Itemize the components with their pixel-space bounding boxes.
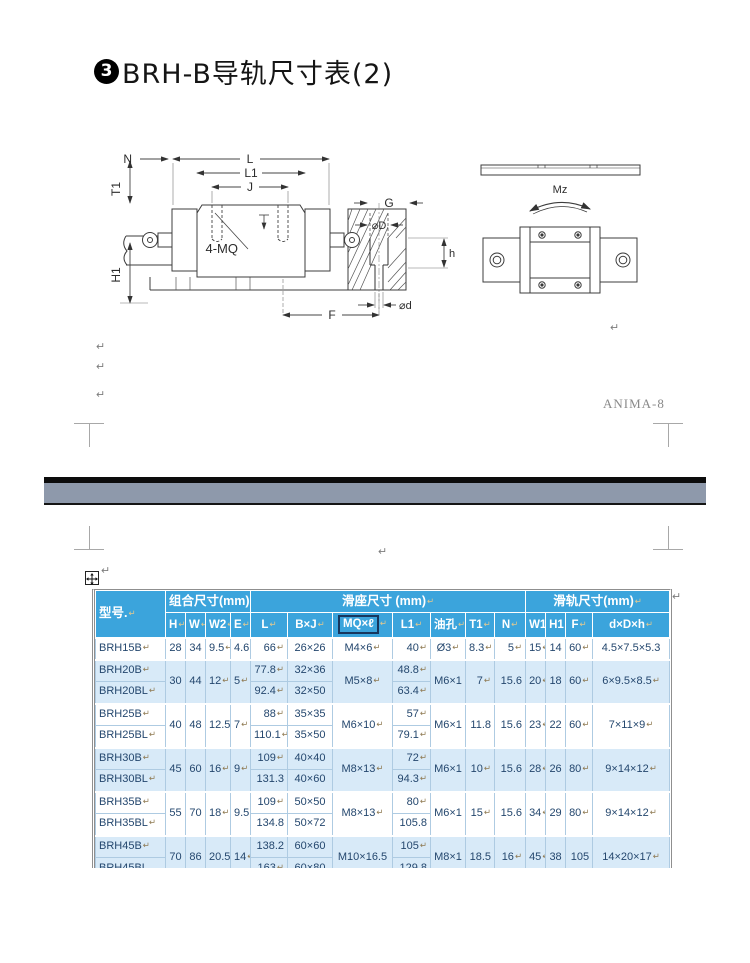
model-cell[interactable]: BRH15B↵ xyxy=(96,638,166,660)
dim-label-h: h xyxy=(449,248,455,260)
table-cell[interactable]: 16↵ xyxy=(495,836,526,869)
table-cell[interactable]: 105 xyxy=(566,836,593,869)
cell-end-mark: ↵ xyxy=(653,675,660,685)
table-cell[interactable]: 28 xyxy=(166,638,186,660)
table-row: BRH45B↵708620.514↵138.260×60M10×16.5105↵… xyxy=(96,836,670,858)
cell-end-mark: ↵ xyxy=(282,729,288,739)
table-row: BRH30B↵456016↵9↵109↵40×40M8×13↵72↵M6×110… xyxy=(96,748,670,770)
column-header-model[interactable]: 型号.↵ xyxy=(96,591,166,638)
cell-end-mark: ↵ xyxy=(653,851,660,861)
table-cell[interactable]: 79.1↵ xyxy=(393,726,431,748)
dim-label-L: L xyxy=(247,152,254,166)
table-cell[interactable]: 48 xyxy=(186,704,206,748)
cell-end-mark: ↵ xyxy=(515,642,522,652)
cell-end-mark: ↵ xyxy=(143,642,150,652)
model-cell[interactable]: BRH35BL↵ xyxy=(96,814,166,836)
table-cell[interactable]: 34↵ xyxy=(526,792,546,836)
dim-label-4MQ: 4-MQ xyxy=(206,241,239,256)
cell-end-mark: ↵ xyxy=(485,642,492,652)
cell-end-mark: ↵ xyxy=(376,807,383,817)
table-cell[interactable]: 45↵ xyxy=(526,836,546,869)
cell-end-mark: ↵ xyxy=(128,608,135,618)
cell-end-mark: ↵ xyxy=(373,642,380,652)
cell-end-mark: ↵ xyxy=(376,763,383,773)
table-cell[interactable]: 4.5×7.5×5.3 xyxy=(593,638,670,660)
cell-end-mark: ↵ xyxy=(241,675,248,685)
cell-end-mark: ↵ xyxy=(318,619,325,629)
table-cell[interactable]: 80↵ xyxy=(566,792,593,836)
cell-end-mark: ↵ xyxy=(149,817,156,827)
table-cell[interactable]: M8×1 xyxy=(431,836,466,869)
table-cell[interactable]: 50×72 xyxy=(288,814,333,836)
table-cell[interactable]: 28↵ xyxy=(526,748,546,792)
table-cell[interactable]: 15.6 xyxy=(495,704,526,748)
table-cell[interactable]: 60↵ xyxy=(566,660,593,704)
dim-label-F: F xyxy=(328,308,335,322)
table-cell[interactable]: 6×9.5×8.5↵ xyxy=(593,660,670,704)
cell-end-mark: ↵ xyxy=(646,719,653,729)
dim-label-d: ⌀d xyxy=(399,300,412,312)
dim-label-T1: T1 xyxy=(109,182,123,196)
table-cell[interactable]: 57↵ xyxy=(393,704,431,726)
spec-table-frame: 型号.↵组合尺寸(mm)↵滑座尺寸 (mm)↵滑轨尺寸(mm)↵H↵W↵W2↵E… xyxy=(92,589,672,868)
cell-end-mark: ↵ xyxy=(269,619,276,629)
page-break-line xyxy=(44,503,706,505)
margin-corner-mark xyxy=(89,526,90,550)
table-cell[interactable]: 86 xyxy=(186,836,206,869)
table-cell[interactable]: 72↵ xyxy=(393,748,431,770)
table-cell[interactable]: 134.8 xyxy=(251,814,288,836)
cell-end-mark: ↵ xyxy=(420,685,427,695)
table-cell[interactable]: 32×36 xyxy=(288,660,333,682)
table-cell[interactable]: 15.6 xyxy=(495,792,526,836)
table-cell[interactable]: 7↵ xyxy=(231,704,251,748)
cell-end-mark: ↵ xyxy=(515,851,522,861)
cell-end-mark: ↵ xyxy=(420,796,427,806)
table-cell[interactable]: 11.8 xyxy=(466,704,495,748)
column-header[interactable]: N↵ xyxy=(495,613,526,638)
table-cell[interactable]: 138.2 xyxy=(251,836,288,858)
table-cell[interactable]: 40 xyxy=(166,704,186,748)
cell-end-mark: ↵ xyxy=(143,664,150,674)
column-header[interactable]: MQ×ℓ↵ xyxy=(333,613,393,638)
column-group-header[interactable]: 滑座尺寸 (mm)↵ xyxy=(251,591,526,613)
paragraph-mark: ↵ xyxy=(96,362,105,373)
cell-end-mark: ↵ xyxy=(241,719,248,729)
column-header[interactable]: 油孔↵ xyxy=(431,613,466,638)
table-cell[interactable]: 7×11×9↵ xyxy=(593,704,670,748)
table-cell[interactable]: 80↵ xyxy=(566,748,593,792)
cell-end-mark: ↵ xyxy=(373,675,380,685)
table-cell[interactable]: 26 xyxy=(546,748,566,792)
highlighted-field-box: MQ×ℓ xyxy=(338,615,379,634)
table-cell[interactable]: 80↵ xyxy=(393,792,431,814)
table-cell[interactable]: 110.1↵ xyxy=(251,726,288,748)
table-cell[interactable]: M8×13↵ xyxy=(333,792,393,836)
table-cell[interactable]: M5×8↵ xyxy=(333,660,393,704)
table-cell[interactable]: 163↵ xyxy=(251,858,288,869)
cell-end-mark: ↵ xyxy=(380,618,387,628)
cell-end-mark: ↵ xyxy=(635,596,642,606)
cell-end-mark: ↵ xyxy=(458,619,465,629)
table-cell[interactable]: 9.5↵ xyxy=(206,638,231,660)
cell-end-mark: ↵ xyxy=(222,675,229,685)
dim-label-D: ⌀D xyxy=(372,220,387,232)
column-header[interactable]: L↵ xyxy=(251,613,288,638)
table-cell[interactable]: M10×16.5 xyxy=(333,836,393,869)
table-row: BRH35B↵557018↵9.5109↵50×50M8×13↵80↵M6×11… xyxy=(96,792,670,814)
cell-end-mark: ↵ xyxy=(143,708,150,718)
table-cell[interactable]: 15.6 xyxy=(495,748,526,792)
cell-end-mark: ↵ xyxy=(484,675,491,685)
table-cell[interactable]: 35×50 xyxy=(288,726,333,748)
table-cell[interactable]: M6×10↵ xyxy=(333,704,393,748)
cell-end-mark: ↵ xyxy=(149,729,156,739)
cell-end-mark: ↵ xyxy=(452,642,459,652)
page-break-separator xyxy=(44,483,706,503)
table-cell[interactable]: 40×60 xyxy=(288,770,333,792)
dim-label-J: J xyxy=(247,180,253,194)
table-cell[interactable]: M6×1 xyxy=(431,792,466,836)
table-cell[interactable]: 14↵ xyxy=(231,836,251,869)
cell-end-mark: ↵ xyxy=(178,619,185,629)
cell-end-mark: ↵ xyxy=(225,642,230,652)
table-cell[interactable]: 32×50 xyxy=(288,682,333,704)
column-header[interactable]: F↵ xyxy=(566,613,593,638)
table-row: BRH25B↵404812.57↵88↵35×35M6×10↵57↵M6×111… xyxy=(96,704,670,726)
cell-end-mark: ↵ xyxy=(580,619,587,629)
table-cell[interactable]: 22 xyxy=(546,704,566,748)
cell-end-mark: ↵ xyxy=(143,752,150,762)
table-cell[interactable]: 105.8 xyxy=(393,814,431,836)
table-cell[interactable]: Ø3↵ xyxy=(431,638,466,660)
column-header[interactable]: W1 xyxy=(526,613,546,638)
table-cell[interactable]: M8×13↵ xyxy=(333,748,393,792)
table-cell[interactable]: 16↵ xyxy=(206,748,231,792)
cell-end-mark: ↵ xyxy=(646,619,653,629)
table-row: BRH15B↵28349.5↵4.666↵26×26M4×6↵40↵Ø3↵8.3… xyxy=(96,638,670,660)
watermark-text: ANIMA-8 xyxy=(603,396,665,412)
table-cell[interactable]: 60×60 xyxy=(288,836,333,858)
cell-end-mark: ↵ xyxy=(277,685,284,695)
move-arrows-icon xyxy=(86,573,98,585)
margin-corner-mark xyxy=(89,423,90,447)
table-cell[interactable]: 5↵ xyxy=(231,660,251,704)
table-cell[interactable]: 109↵ xyxy=(251,748,288,770)
table-cell[interactable]: 15.6 xyxy=(495,660,526,704)
column-header[interactable]: H1 xyxy=(546,613,566,638)
table-cell[interactable]: 44 xyxy=(186,660,206,704)
dim-label-N: N xyxy=(123,152,132,166)
cell-end-mark: ↵ xyxy=(222,763,229,773)
column-group-header[interactable]: 组合尺寸(mm)↵ xyxy=(166,591,251,613)
table-row: BRH20B↵304412↵5↵77.8↵32×36M5×8↵48.8↵M6×1… xyxy=(96,660,670,682)
model-cell[interactable]: BRH35B↵ xyxy=(96,792,166,814)
table-cell[interactable]: M4×6↵ xyxy=(333,638,393,660)
table-cell[interactable]: 18 xyxy=(546,660,566,704)
table-cell[interactable]: 50×50 xyxy=(288,792,333,814)
table-cell[interactable]: 38 xyxy=(546,836,566,869)
cell-end-mark: ↵ xyxy=(484,763,491,773)
table-cell[interactable]: 20.5 xyxy=(206,836,231,869)
table-cell[interactable]: 55 xyxy=(166,792,186,836)
table-cell[interactable]: 9↵ xyxy=(231,748,251,792)
dim-label-H1: H1 xyxy=(109,267,123,283)
left-section-view xyxy=(124,203,406,311)
model-cell[interactable]: BRH25BL↵ xyxy=(96,726,166,748)
table-cell[interactable]: 60↵ xyxy=(566,704,593,748)
margin-corner-mark xyxy=(668,423,669,447)
cell-end-mark: ↵ xyxy=(241,763,248,773)
table-cell[interactable]: 92.4↵ xyxy=(251,682,288,704)
cell-end-mark: ↵ xyxy=(149,773,156,783)
column-header[interactable]: B×J↵ xyxy=(288,613,333,638)
cell-end-mark: ↵ xyxy=(277,796,284,806)
rail-dimension-drawing: N L L1 J T1 H1 G ⌀D h ⌀d F 4-MQ Mz xyxy=(90,143,670,343)
table-cell[interactable]: 60×80 xyxy=(288,858,333,869)
table-cell[interactable]: M6×1 xyxy=(431,748,466,792)
table-cell[interactable]: 35×35 xyxy=(288,704,333,726)
table-cell[interactable]: M6×1 xyxy=(431,704,466,748)
table-cell[interactable]: 45 xyxy=(166,748,186,792)
model-cell[interactable]: BRH20BL↵ xyxy=(96,682,166,704)
table-cell[interactable]: 48.8↵ xyxy=(393,660,431,682)
table-cell[interactable]: 40×40 xyxy=(288,748,333,770)
table-cell[interactable]: 109↵ xyxy=(251,792,288,814)
cell-end-mark: ↵ xyxy=(582,675,589,685)
cell-end-mark: ↵ xyxy=(143,796,150,806)
table-cell[interactable]: 29 xyxy=(546,792,566,836)
column-header[interactable]: E↵ xyxy=(231,613,251,638)
column-header[interactable]: W↵ xyxy=(186,613,206,638)
table-cell[interactable]: 18↵ xyxy=(206,792,231,836)
table-cell[interactable]: 15↵ xyxy=(466,792,495,836)
table-cell[interactable]: 9×14×12↵ xyxy=(593,792,670,836)
table-cell[interactable]: 88↵ xyxy=(251,704,288,726)
paragraph-mark: ↵ xyxy=(101,566,110,577)
spec-table-container: 型号.↵组合尺寸(mm)↵滑座尺寸 (mm)↵滑轨尺寸(mm)↵H↵W↵W2↵E… xyxy=(92,589,674,868)
table-cell[interactable]: 70 xyxy=(166,836,186,869)
document-page: { "title": {"bullet": "3", "text": "BRH-… xyxy=(0,0,750,963)
dim-label-Mz: Mz xyxy=(553,184,568,196)
paragraph-mark: ↵ xyxy=(610,323,619,334)
cell-end-mark: ↵ xyxy=(243,619,250,629)
page-title: 3 BRH-B导轨尺寸表(2) xyxy=(94,52,393,91)
table-cell[interactable]: 14×20×17↵ xyxy=(593,836,670,869)
table-cell[interactable]: 94.3↵ xyxy=(393,770,431,792)
table-cell[interactable]: 9.5 xyxy=(231,792,251,836)
table-cell[interactable]: 131.3 xyxy=(251,770,288,792)
table-cell[interactable]: 18.5 xyxy=(466,836,495,869)
table-cell[interactable]: M6×1 xyxy=(431,660,466,704)
cell-end-mark: ↵ xyxy=(650,763,657,773)
cell-end-mark: ↵ xyxy=(420,752,427,762)
table-cell[interactable]: 7↵ xyxy=(466,660,495,704)
table-cell[interactable]: 10↵ xyxy=(466,748,495,792)
table-move-handle[interactable] xyxy=(85,571,99,585)
page-title-text: BRH-B导轨尺寸表(2) xyxy=(122,52,393,91)
table-cell[interactable]: 15↵ xyxy=(526,638,546,660)
cell-end-mark: ↵ xyxy=(277,708,284,718)
cell-end-mark: ↵ xyxy=(427,596,434,606)
cell-end-mark: ↵ xyxy=(277,664,284,674)
column-header[interactable]: L1↵ xyxy=(393,613,431,638)
cell-end-mark: ↵ xyxy=(420,773,427,783)
column-header[interactable]: H↵ xyxy=(166,613,186,638)
table-cell[interactable]: 77.8↵ xyxy=(251,660,288,682)
model-cell[interactable]: BRH30BL↵ xyxy=(96,770,166,792)
table-cell[interactable]: 5↵ xyxy=(495,638,526,660)
paragraph-mark: ↵ xyxy=(96,390,105,401)
table-cell[interactable]: 26×26 xyxy=(288,638,333,660)
cell-end-mark: ↵ xyxy=(582,642,589,652)
cell-end-mark: ↵ xyxy=(222,807,229,817)
rail-spec-table[interactable]: 型号.↵组合尺寸(mm)↵滑座尺寸 (mm)↵滑轨尺寸(mm)↵H↵W↵W2↵E… xyxy=(95,590,670,868)
table-cell[interactable]: 63.4↵ xyxy=(393,682,431,704)
cell-end-mark: ↵ xyxy=(201,619,206,629)
table-cell[interactable]: 20↵ xyxy=(526,660,546,704)
cell-end-mark: ↵ xyxy=(420,840,427,850)
table-cell[interactable]: 23↵ xyxy=(526,704,546,748)
cell-end-mark: ↵ xyxy=(149,685,156,695)
dim-label-L1: L1 xyxy=(244,166,258,180)
cell-end-mark: ↵ xyxy=(420,729,427,739)
table-cell[interactable]: 9×14×12↵ xyxy=(593,748,670,792)
cell-end-mark: ↵ xyxy=(582,763,589,773)
cell-end-mark: ↵ xyxy=(420,664,427,674)
title-number-badge: 3 xyxy=(94,59,119,84)
cell-end-mark: ↵ xyxy=(277,752,284,762)
table-cell[interactable]: 40↵ xyxy=(393,638,431,660)
cell-end-mark: ↵ xyxy=(420,708,427,718)
cell-end-mark: ↵ xyxy=(582,719,589,729)
cell-end-mark: ↵ xyxy=(415,619,422,629)
model-cell[interactable]: BRH45B↵ xyxy=(96,836,166,858)
model-cell[interactable]: BRH20B↵ xyxy=(96,660,166,682)
cell-end-mark: ↵ xyxy=(277,642,284,652)
column-group-header[interactable]: 滑轨尺寸(mm)↵ xyxy=(526,591,670,613)
model-cell[interactable]: BRH30B↵ xyxy=(96,748,166,770)
cell-end-mark: ↵ xyxy=(143,840,150,850)
model-cell[interactable]: BRH45BL xyxy=(96,858,166,869)
column-header[interactable]: W2↵ xyxy=(206,613,231,638)
table-cell[interactable]: 60↵ xyxy=(566,638,593,660)
table-cell[interactable]: 60 xyxy=(186,748,206,792)
table-cell[interactable]: 4.6 xyxy=(231,638,251,660)
table-cell[interactable]: 66↵ xyxy=(251,638,288,660)
table-cell[interactable]: 70 xyxy=(186,792,206,836)
cell-end-mark: ↵ xyxy=(511,619,518,629)
cell-end-mark: ↵ xyxy=(484,619,491,629)
table-cell[interactable]: 34 xyxy=(186,638,206,660)
column-header[interactable]: d×D×h↵ xyxy=(593,613,670,638)
table-cell[interactable]: 14 xyxy=(546,638,566,660)
margin-corner-mark xyxy=(668,526,669,550)
paragraph-mark: ↵ xyxy=(96,342,105,353)
table-cell[interactable]: 8.3↵ xyxy=(466,638,495,660)
table-cell[interactable]: 129.8 xyxy=(393,858,431,869)
model-cell[interactable]: BRH25B↵ xyxy=(96,704,166,726)
table-cell[interactable]: 105↵ xyxy=(393,836,431,858)
dim-label-G: G xyxy=(384,196,393,210)
cell-end-mark: ↵ xyxy=(277,862,284,868)
cell-end-mark: ↵ xyxy=(484,807,491,817)
cell-end-mark: ↵ xyxy=(582,807,589,817)
cell-end-mark: ↵ xyxy=(376,719,383,729)
table-cell[interactable]: 12.5 xyxy=(206,704,231,748)
table-cell[interactable]: 12↵ xyxy=(206,660,231,704)
cell-end-mark: ↵ xyxy=(650,807,657,817)
cell-end-mark: ↵ xyxy=(420,642,427,652)
table-cell[interactable]: 30 xyxy=(166,660,186,704)
column-header[interactable]: T1↵ xyxy=(466,613,495,638)
paragraph-mark: ↵ xyxy=(378,547,387,558)
